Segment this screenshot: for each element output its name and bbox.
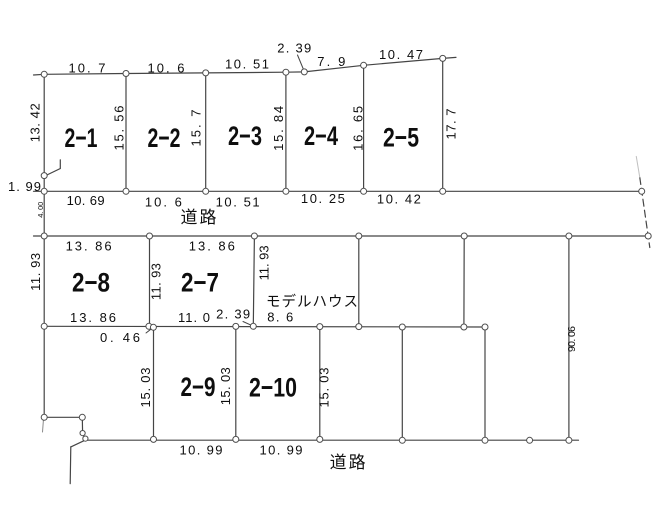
svg-text:11. 93: 11. 93 bbox=[28, 253, 43, 291]
svg-text:10. 99: 10. 99 bbox=[180, 442, 223, 457]
svg-text:2−9: 2−9 bbox=[181, 372, 216, 402]
svg-text:2−7: 2−7 bbox=[181, 268, 219, 298]
svg-text:1. 99: 1. 99 bbox=[8, 179, 41, 194]
svg-text:2−8: 2−8 bbox=[72, 268, 110, 298]
svg-text:16. 65: 16. 65 bbox=[351, 106, 366, 151]
svg-text:13. 86: 13. 86 bbox=[66, 239, 112, 254]
svg-text:15. 7: 15. 7 bbox=[189, 110, 204, 147]
svg-text:15. 03: 15. 03 bbox=[316, 368, 331, 408]
svg-text:10. 6: 10. 6 bbox=[145, 194, 182, 209]
svg-text:道路: 道路 bbox=[181, 208, 219, 227]
svg-text:13. 86: 13. 86 bbox=[70, 310, 116, 325]
svg-text:10. 69: 10. 69 bbox=[67, 193, 105, 208]
svg-text:15. 03: 15. 03 bbox=[138, 368, 153, 408]
svg-text:10. 47: 10. 47 bbox=[379, 47, 423, 62]
svg-text:10. 42: 10. 42 bbox=[377, 192, 421, 207]
svg-text:15. 56: 15. 56 bbox=[112, 106, 127, 151]
svg-text:15. 84: 15. 84 bbox=[271, 106, 286, 151]
svg-text:2. 39: 2. 39 bbox=[216, 306, 250, 321]
svg-text:11. 0: 11. 0 bbox=[178, 310, 210, 325]
svg-text:11. 93: 11. 93 bbox=[257, 245, 272, 280]
svg-text:10. 51: 10. 51 bbox=[225, 57, 269, 72]
svg-text:11. 93: 11. 93 bbox=[149, 263, 164, 300]
svg-text:2−5: 2−5 bbox=[383, 123, 419, 153]
svg-text:道路: 道路 bbox=[330, 453, 368, 472]
svg-text:10. 25: 10. 25 bbox=[301, 191, 345, 206]
svg-text:17. 7: 17. 7 bbox=[444, 109, 459, 140]
svg-text:8. 6: 8. 6 bbox=[267, 310, 293, 325]
svg-text:4. 00: 4. 00 bbox=[36, 202, 45, 218]
svg-text:2−4: 2−4 bbox=[304, 121, 338, 151]
svg-text:10. 99: 10. 99 bbox=[260, 442, 303, 457]
svg-text:2−3: 2−3 bbox=[228, 121, 262, 151]
svg-text:10. 51: 10. 51 bbox=[216, 194, 260, 209]
svg-text:2−10: 2−10 bbox=[249, 373, 297, 403]
svg-text:0. 46: 0. 46 bbox=[100, 330, 140, 345]
svg-text:90. 06: 90. 06 bbox=[566, 326, 578, 352]
svg-text:13. 42: 13. 42 bbox=[28, 103, 43, 142]
svg-text:モデルハウス: モデルハウス bbox=[266, 292, 359, 310]
svg-text:2−1: 2−1 bbox=[65, 123, 98, 153]
svg-text:13. 86: 13. 86 bbox=[189, 239, 235, 254]
svg-text:10. 7: 10. 7 bbox=[69, 61, 106, 76]
svg-text:2. 39: 2. 39 bbox=[277, 40, 311, 55]
svg-text:2−2: 2−2 bbox=[148, 123, 181, 153]
svg-text:10. 6: 10. 6 bbox=[148, 61, 185, 76]
svg-text:15. 03: 15. 03 bbox=[218, 367, 233, 405]
